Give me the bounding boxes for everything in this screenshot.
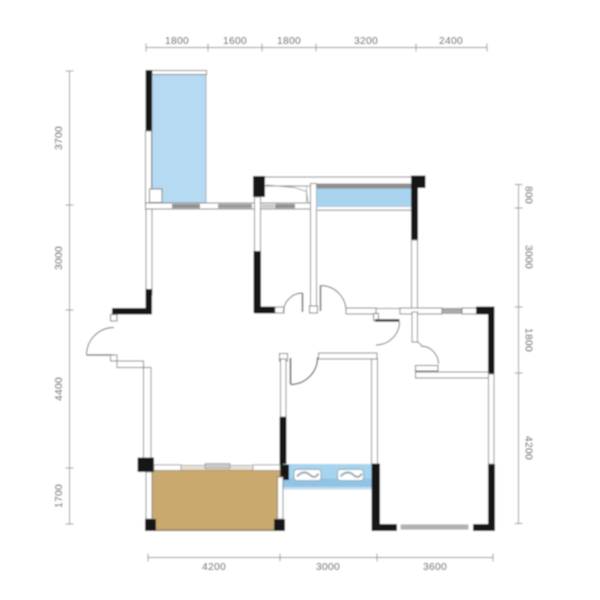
svg-text:1800: 1800 [165,36,189,47]
svg-text:3700: 3700 [54,126,65,150]
svg-text:4400: 4400 [54,377,65,401]
svg-text:3000: 3000 [523,245,534,269]
svg-text:3000: 3000 [316,562,340,573]
svg-text:1600: 1600 [223,36,247,47]
svg-text:3200: 3200 [354,36,378,47]
svg-text:1800: 1800 [523,328,534,352]
svg-text:3600: 3600 [423,562,447,573]
svg-text:800: 800 [523,186,534,204]
svg-text:1800: 1800 [277,36,301,47]
svg-text:1700: 1700 [54,484,65,508]
svg-text:2400: 2400 [439,36,463,47]
svg-text:4200: 4200 [202,562,226,573]
svg-text:4200: 4200 [523,436,534,460]
svg-text:3000: 3000 [54,246,65,270]
